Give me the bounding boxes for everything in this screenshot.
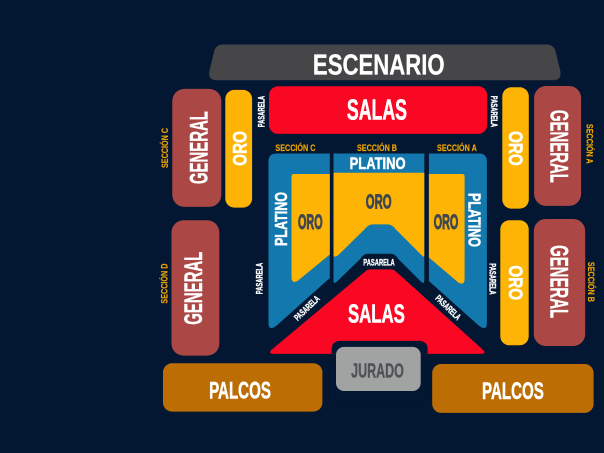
svg-text:PASARELA: PASARELA [363,257,395,268]
svg-text:ORO: ORO [228,131,250,166]
svg-text:ORO: ORO [505,131,527,166]
svg-text:ORO: ORO [366,190,392,214]
svg-text:SECCIÓN D: SECCIÓN D [160,263,170,303]
svg-text:PASARELA: PASARELA [488,96,499,128]
svg-text:SECCIÓN A: SECCIÓN A [437,143,477,153]
svg-text:JURADO: JURADO [351,360,404,383]
svg-text:GENERAL: GENERAL [544,245,572,318]
svg-text:GENERAL: GENERAL [180,252,208,325]
svg-text:PLATINO: PLATINO [350,155,406,173]
svg-text:SECCIÓN B: SECCIÓN B [357,143,397,153]
svg-text:PASARELA: PASARELA [256,95,267,127]
svg-text:SALAS: SALAS [348,299,405,329]
svg-text:SECCIÓN B: SECCIÓN B [586,262,596,302]
svg-text:GENERAL: GENERAL [544,110,572,183]
svg-text:SALAS: SALAS [347,94,407,126]
svg-text:ORO: ORO [505,265,527,300]
svg-text:ORO: ORO [434,210,459,234]
svg-text:PALCOS: PALCOS [482,379,544,405]
svg-text:PASARELA: PASARELA [254,262,265,294]
svg-text:ORO: ORO [298,210,323,234]
svg-text:SECCIÓN C: SECCIÓN C [275,143,315,153]
svg-text:PLATINO: PLATINO [272,192,291,246]
svg-text:PASARELA: PASARELA [487,263,498,295]
svg-text:PALCOS: PALCOS [209,378,271,404]
svg-text:SECCIÓN C: SECCIÓN C [160,128,170,168]
svg-text:SECCIÓN A: SECCIÓN A [584,124,594,164]
svg-text:ESCENARIO: ESCENARIO [313,50,445,81]
svg-text:GENERAL: GENERAL [186,111,214,184]
svg-text:PLATINO: PLATINO [464,193,483,247]
